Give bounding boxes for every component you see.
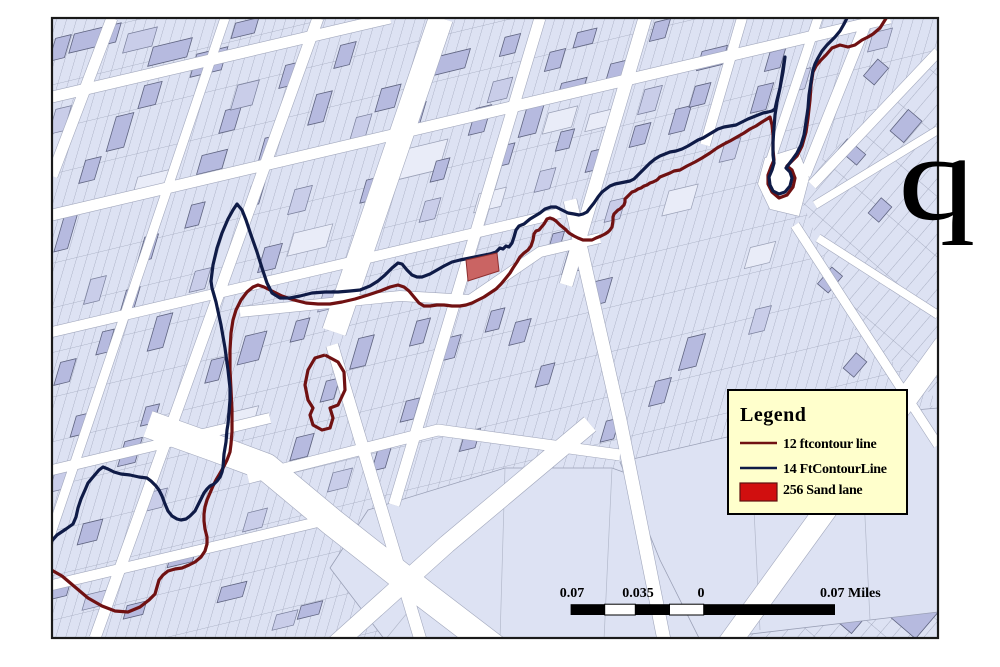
- svg-text:Legend: Legend: [740, 404, 806, 426]
- svg-text:14 FtContourLine: 14 FtContourLine: [783, 462, 887, 477]
- svg-text:0.035: 0.035: [622, 586, 654, 601]
- svg-text:0.07: 0.07: [560, 586, 585, 601]
- svg-text:256 Sand lane: 256 Sand lane: [783, 483, 862, 498]
- svg-text:12 ftcontour line: 12 ftcontour line: [783, 437, 876, 452]
- svg-text:0: 0: [698, 586, 705, 601]
- svg-text:0.07 Miles: 0.07 Miles: [820, 586, 881, 601]
- svg-text:q: q: [898, 111, 975, 246]
